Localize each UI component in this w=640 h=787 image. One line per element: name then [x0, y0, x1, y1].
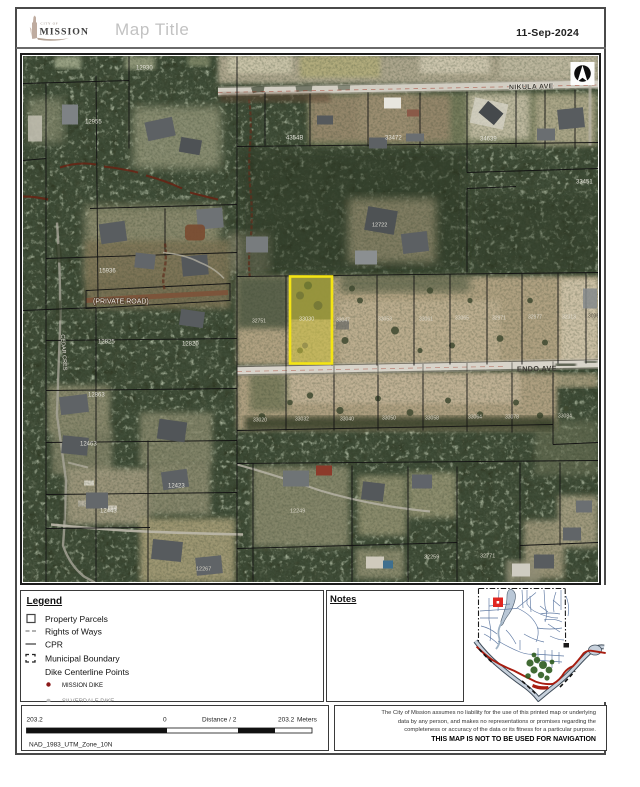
svg-text:0: 0 [163, 717, 167, 724]
svg-text:4354B: 4354B [286, 135, 303, 141]
svg-text:(PRIVATE ROAD): (PRIVATE ROAD) [93, 298, 149, 305]
svg-text:32751: 32751 [252, 318, 266, 324]
svg-text:34639: 34639 [480, 136, 497, 142]
svg-text:CITY OF: CITY OF [41, 22, 59, 26]
svg-text:33058: 33058 [425, 415, 439, 421]
svg-text:33050: 33050 [382, 415, 396, 421]
svg-text:32971: 32971 [492, 315, 506, 321]
svg-text:33472: 33472 [385, 135, 402, 141]
svg-text:Municipal Boundary: Municipal Boundary [45, 654, 120, 664]
svg-text:33064: 33064 [468, 414, 482, 420]
svg-text:NAD_1983_UTM_Zone_10N: NAD_1983_UTM_Zone_10N [29, 742, 113, 749]
svg-text:Rights of Ways: Rights of Ways [45, 627, 102, 637]
svg-text:MISSION: MISSION [40, 27, 89, 38]
svg-text:32313: 32313 [562, 314, 576, 320]
svg-text:Dike Centerline Points: Dike Centerline Points [45, 667, 129, 677]
svg-text:NIKULA AVE: NIKULA AVE [509, 83, 554, 91]
svg-text:12443: 12443 [100, 508, 117, 514]
svg-text:12267: 12267 [196, 566, 211, 572]
svg-text:12722: 12722 [372, 222, 387, 228]
svg-text:203.2: 203.2 [278, 717, 295, 724]
svg-text:12423: 12423 [168, 483, 185, 489]
svg-text:3036: 3036 [588, 313, 598, 319]
svg-text:33065: 33065 [455, 315, 469, 321]
svg-text:Meters: Meters [297, 717, 318, 724]
svg-text:33451: 33451 [576, 179, 593, 185]
svg-text:32259: 32259 [424, 554, 439, 560]
svg-text:33040: 33040 [340, 416, 354, 422]
svg-text:Property Parcels: Property Parcels [45, 614, 108, 624]
svg-text:Legend: Legend [27, 596, 63, 607]
svg-text:12249: 12249 [290, 508, 305, 514]
svg-text:33032: 33032 [295, 416, 309, 422]
svg-text:33084: 33084 [558, 413, 572, 419]
svg-text:12863: 12863 [88, 392, 105, 398]
svg-text:32977: 32977 [528, 314, 542, 320]
svg-text:ENDO AVE: ENDO AVE [517, 363, 557, 373]
svg-text:203.2: 203.2 [27, 717, 44, 724]
svg-text:33047: 33047 [336, 317, 350, 323]
svg-text:SILVERDALE DIKE: SILVERDALE DIKE [62, 699, 114, 702]
svg-text:15936: 15936 [99, 268, 116, 274]
svg-text:CPR: CPR [45, 640, 63, 650]
svg-text:33030: 33030 [299, 316, 314, 322]
svg-text:Distance / 2: Distance / 2 [202, 717, 237, 724]
svg-text:12820: 12820 [182, 341, 199, 347]
svg-text:MISSION DIKE: MISSION DIKE [62, 683, 103, 689]
svg-text:12955: 12955 [85, 119, 102, 125]
svg-text:33053: 33053 [378, 316, 392, 322]
svg-text:33020: 33020 [253, 417, 267, 423]
svg-text:12930: 12930 [136, 65, 153, 71]
svg-text:33078: 33078 [505, 414, 519, 420]
svg-text:12463: 12463 [80, 441, 97, 447]
svg-text:33061: 33061 [419, 316, 433, 322]
svg-text:12825: 12825 [98, 339, 115, 345]
svg-text:32771: 32771 [480, 553, 495, 559]
